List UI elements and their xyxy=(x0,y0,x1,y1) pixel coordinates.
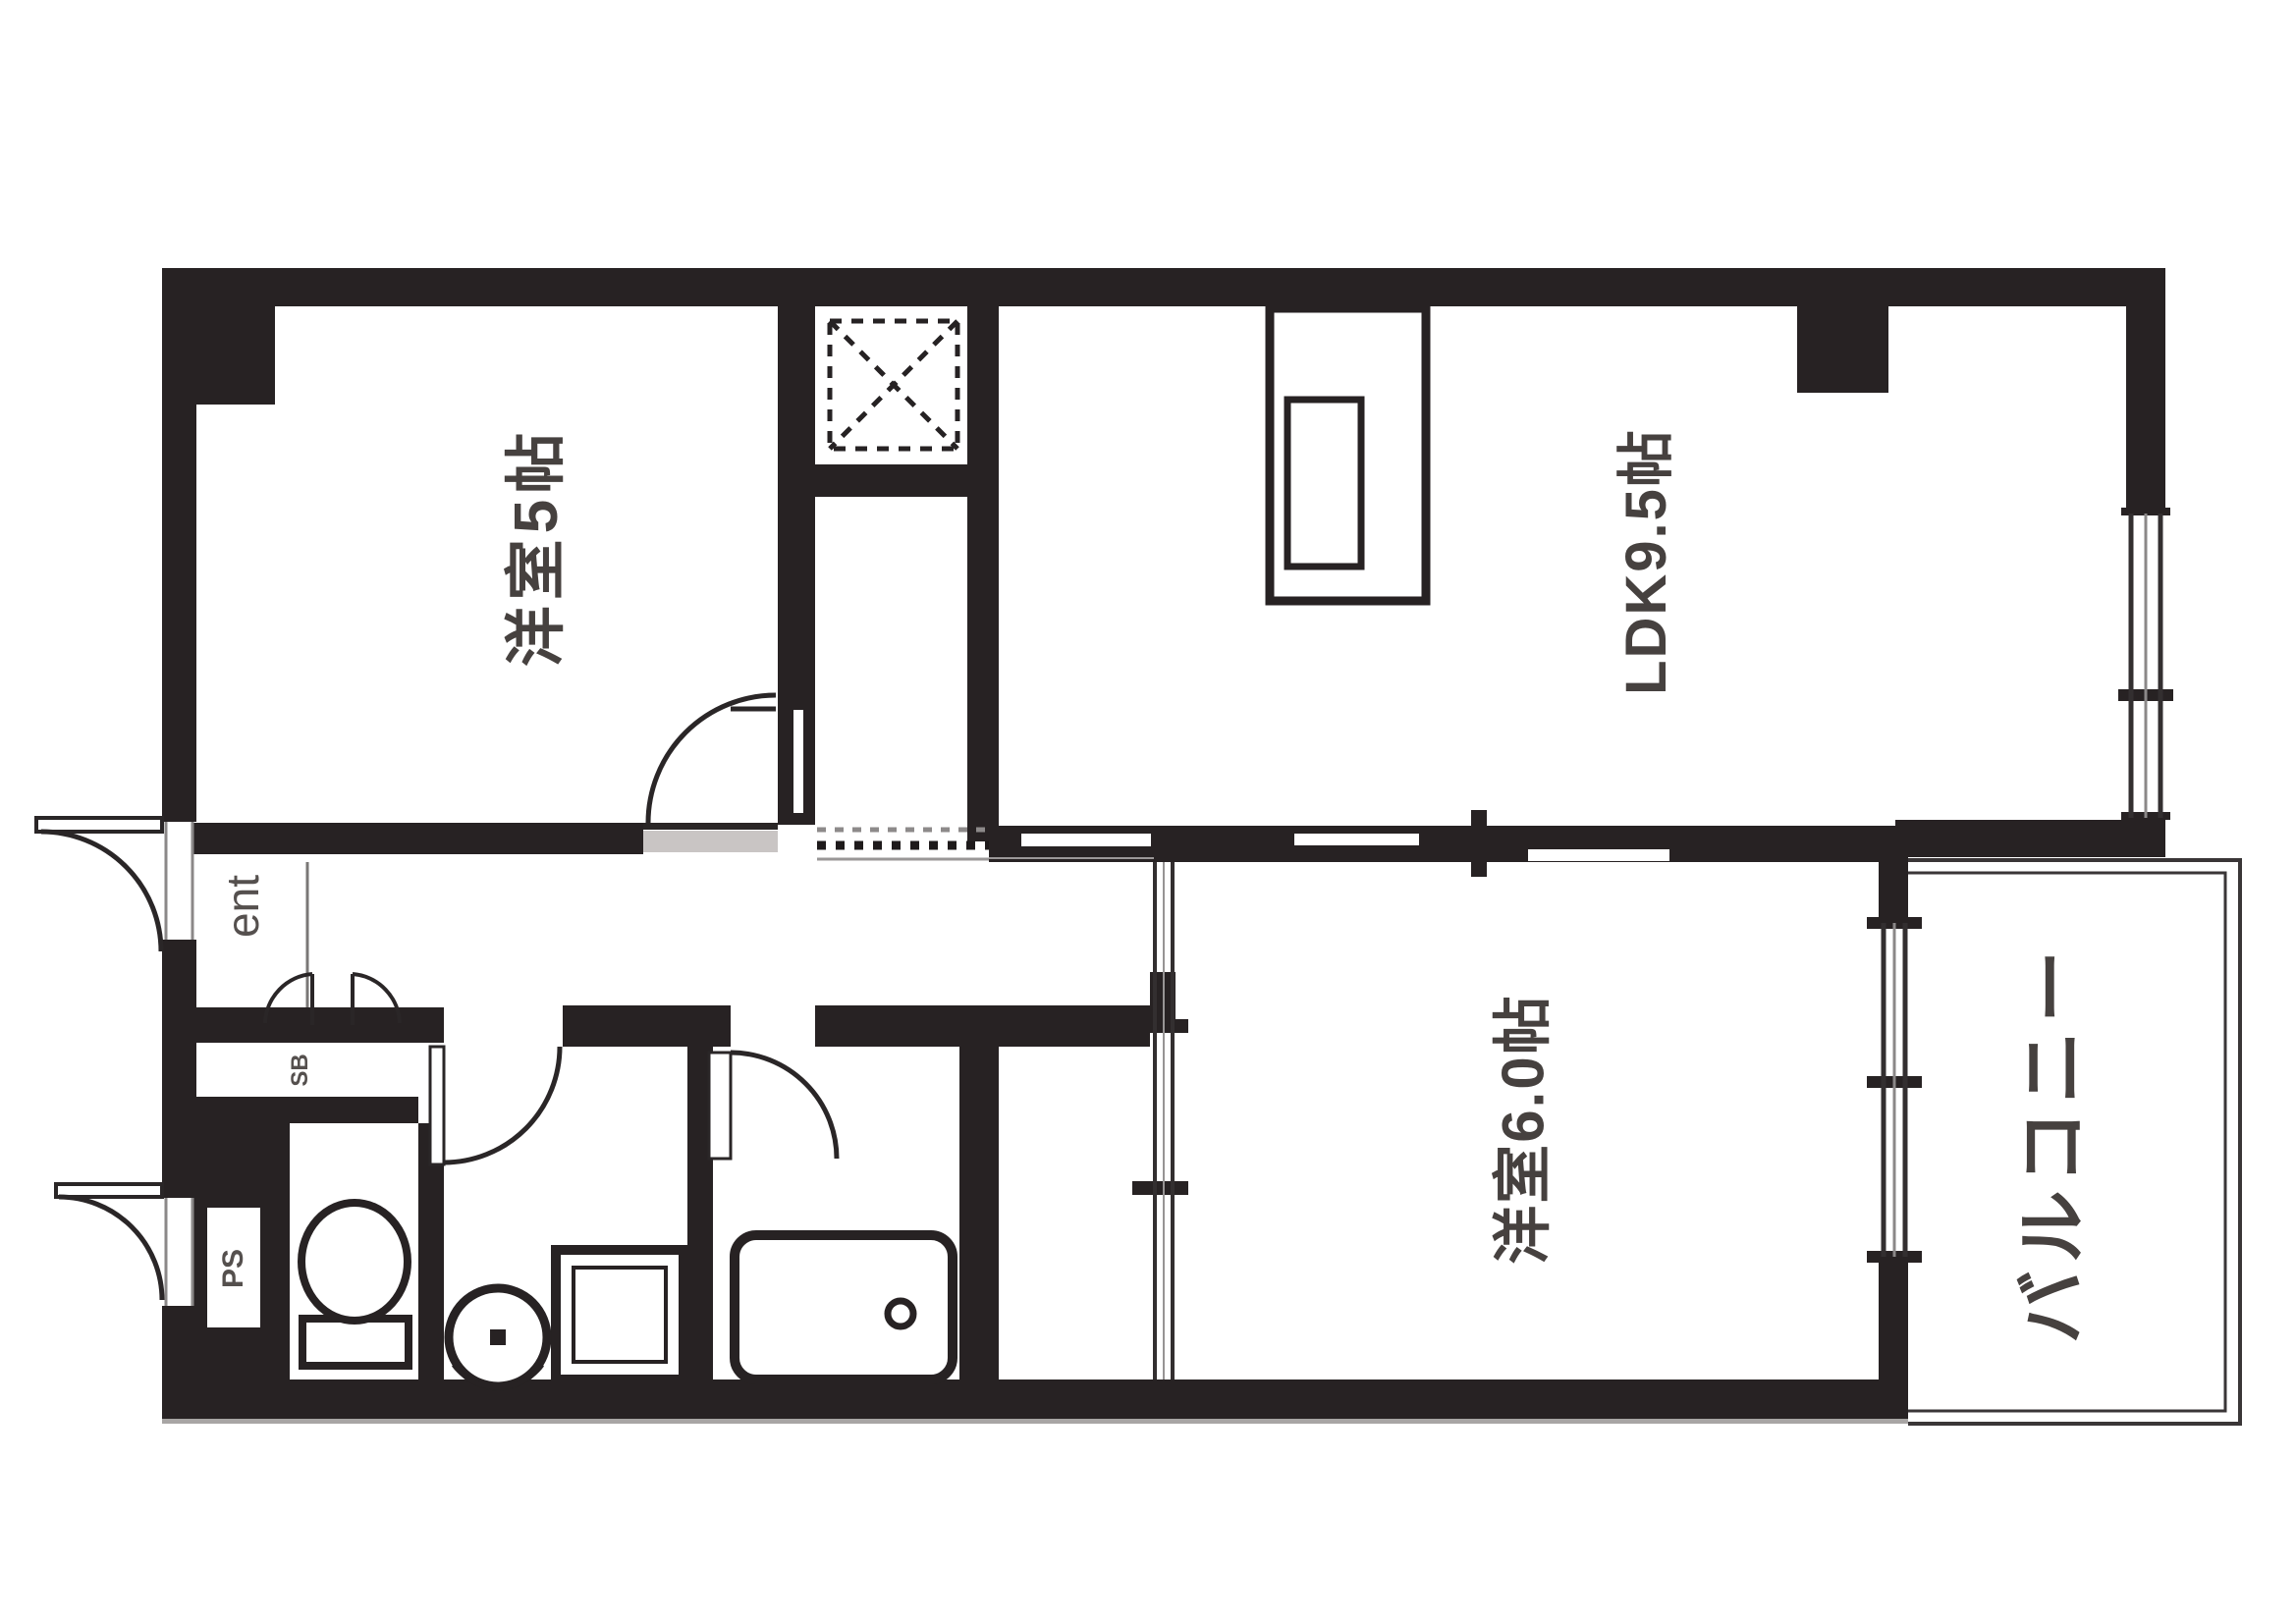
room-label-western-room-6: 洋室6.0帖 xyxy=(1476,994,1561,1264)
wall-band-solid-1 xyxy=(1175,826,1292,862)
wall-left-mid xyxy=(162,940,196,1198)
wall-bottom xyxy=(162,1380,1908,1419)
kitchen-counter xyxy=(1270,308,1426,601)
ldk-balcony-window xyxy=(2131,514,2160,818)
bathtub-drain xyxy=(888,1301,913,1326)
wall-closet-east xyxy=(967,306,999,841)
room-label-entrance: ent xyxy=(216,875,269,938)
room5-door xyxy=(648,695,776,823)
room-label-western-room-5: 洋室5帖 xyxy=(486,427,574,667)
room-label-shoe-box: SB xyxy=(287,1054,314,1086)
sliding-panel-2 xyxy=(1528,849,1669,861)
wall-corridor-north xyxy=(193,823,643,854)
wall-room6-east-bottom xyxy=(1879,1257,1908,1419)
wall-left-upper xyxy=(162,306,196,822)
wall-sb-north xyxy=(193,1007,444,1043)
wall-bottom-shadow xyxy=(162,1419,1908,1424)
room-label-pipe-space: PS xyxy=(217,1249,250,1288)
wall-band-joint xyxy=(1154,826,1175,862)
wall-room6-east-top xyxy=(1879,853,1908,923)
room-label-ldk: LDK9.5帖 xyxy=(1600,428,1682,695)
meter-box-door xyxy=(56,1184,162,1300)
room-label-balcony: バルコニー xyxy=(1995,943,2100,1344)
washroom-door xyxy=(430,1047,560,1164)
refrigerator-space xyxy=(830,321,957,449)
sliding-center-tick xyxy=(1471,810,1487,877)
closet-folding-door xyxy=(817,830,989,859)
room5-door-sill xyxy=(643,823,778,830)
wash-basin xyxy=(449,1288,547,1387)
wall-top xyxy=(162,268,2165,306)
sliding-slit-corridor xyxy=(1021,834,1151,846)
walls-layer xyxy=(162,268,2173,1424)
wall-bath-closet-top xyxy=(815,1005,1150,1047)
toilet xyxy=(301,1203,409,1366)
sliding-panel-1 xyxy=(1294,834,1419,845)
fixtures-layer xyxy=(301,308,2240,1424)
room6-west-tick-1 xyxy=(1132,1019,1188,1033)
room6-west-tick-2 xyxy=(1132,1181,1188,1195)
windows-layer xyxy=(166,514,2160,1380)
room5-door-sill-light xyxy=(643,831,778,852)
wall-closet-top xyxy=(815,464,967,497)
wall-balcony-top xyxy=(1895,820,2165,857)
floor-plan-drawing xyxy=(0,0,2296,1623)
wall-sb-south xyxy=(193,1097,418,1123)
basin-faucet xyxy=(490,1329,506,1345)
kitchen-sink xyxy=(1287,400,1361,567)
floor-plan-page: 洋室5帖 LDK9.5帖 洋室6.0帖 バルコニー ent SB PS xyxy=(0,0,2296,1623)
wall-bath-east xyxy=(959,1043,999,1380)
wall-right-upper xyxy=(2126,306,2165,514)
wall-band-solid-2 xyxy=(1669,826,1908,862)
wall-kitchen-stub xyxy=(1797,306,1888,393)
wall-washroom-bath-top xyxy=(563,1005,731,1047)
wall-room5-east-slit xyxy=(793,710,803,813)
room6-balcony-window xyxy=(1884,923,1905,1257)
room6-west-partition xyxy=(1155,862,1173,1380)
bathroom-door xyxy=(709,1053,837,1159)
washing-machine-pan xyxy=(556,1250,683,1380)
bathtub xyxy=(735,1235,953,1380)
entrance-door xyxy=(36,818,162,951)
